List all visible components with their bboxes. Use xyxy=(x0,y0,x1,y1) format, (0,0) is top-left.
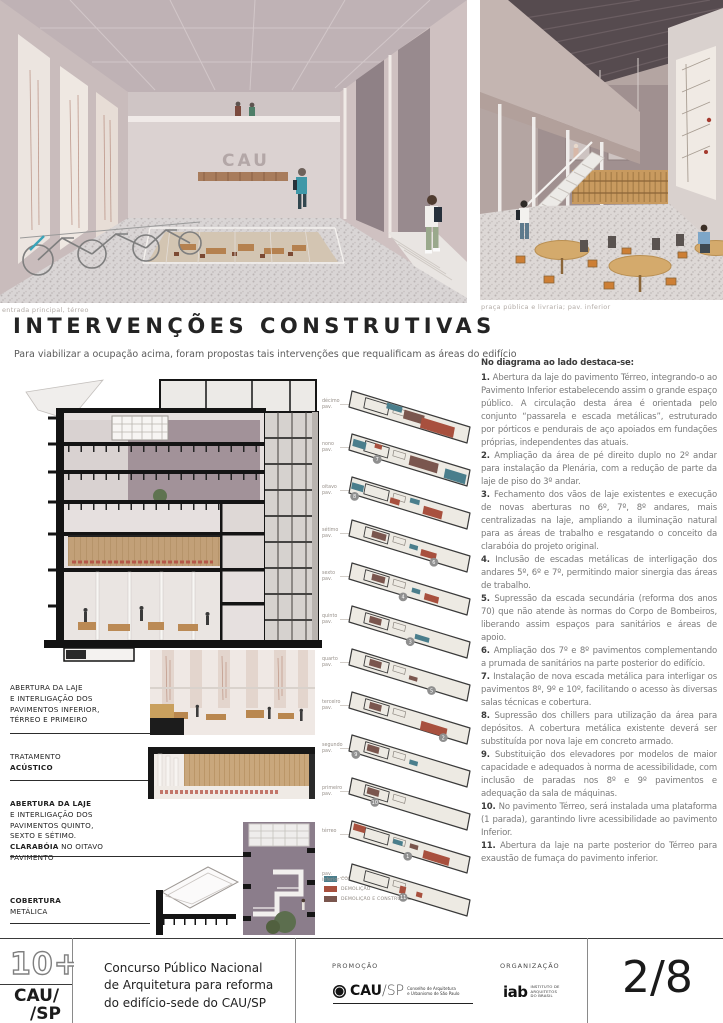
floor-label: oitavopav. xyxy=(322,485,344,497)
footer-cell-divider xyxy=(587,938,588,1023)
floor-label: quintopav. xyxy=(322,614,344,626)
intervention-item: 8. Supressão dos chillers para utilizaçã… xyxy=(481,710,717,749)
caption-plaza: praça pública e livraria; pav. inferior xyxy=(481,303,611,311)
intervention-item: 1. Abertura da laje do pavimento Térreo,… xyxy=(481,372,717,450)
footer-divider xyxy=(0,938,723,939)
svg-text:10: 10 xyxy=(372,800,378,806)
footer-cell-divider xyxy=(295,938,296,1023)
artwork-panels-right xyxy=(676,46,716,200)
intervention-item: 6. Ampliação dos 7º e 8º pavimentos comp… xyxy=(481,645,717,671)
floor-label: nonopav. xyxy=(322,442,344,454)
floor-label: pav.inferior xyxy=(322,872,344,884)
detail-skylight-stairs xyxy=(243,822,315,935)
plenary-wood-wall xyxy=(68,536,220,566)
rooftop-annex xyxy=(160,380,316,412)
floor-label: terceiropav. xyxy=(322,700,344,712)
causp-logo-subtext: Conselho de Arquitetura e Urbanismo de S… xyxy=(407,986,459,996)
floor-label: sétimopav. xyxy=(322,528,344,540)
caption-entrance: entrada principal, térreo xyxy=(2,306,89,314)
intervention-item: 11. Abertura da laje na parte posterior … xyxy=(481,840,717,866)
logo-divider xyxy=(0,984,72,985)
counter xyxy=(150,718,184,735)
building-section-drawing xyxy=(8,376,328,662)
detail-metal-roof xyxy=(150,862,242,935)
intervention-item: 5. Supressão da escada secundária (refor… xyxy=(481,593,717,645)
annotation-leader-line xyxy=(10,733,152,734)
render-entrance-hall: CAU xyxy=(0,0,467,303)
interventions-heading: No diagrama ao lado destaca-se: xyxy=(481,357,717,370)
page-subtitle: Para viabilizar a ocupação acima, foram … xyxy=(14,349,517,360)
detail-acoustic-room xyxy=(148,747,315,799)
svg-text:8: 8 xyxy=(353,494,356,500)
annotation-leader-line xyxy=(10,780,150,781)
reception-desk xyxy=(198,172,288,181)
svg-text:7: 7 xyxy=(376,457,379,463)
svg-text:9: 9 xyxy=(354,752,357,758)
axon-diagram: CONSTRUÇÃODEMOLIÇÃODEMOLIÇÃO E CONSTRUÇÃ… xyxy=(322,386,482,931)
svg-text:11: 11 xyxy=(400,895,406,901)
presentation-board: CAU xyxy=(0,0,723,1023)
render-public-plaza xyxy=(480,0,723,300)
causp-emblem-icon xyxy=(333,985,346,998)
team-logo-causp: CAU/ /SP xyxy=(14,988,61,1023)
causp-logo: CAU /SP Conselho de Arquitetura e Urbani… xyxy=(333,983,460,999)
person xyxy=(302,899,306,910)
annotation-slab-opening-upper: ABERTURA DA LAJEE INTERLIGAÇÃO DOSPAVIME… xyxy=(10,799,150,864)
intervention-item: 10. No pavimento Térreo, será instalada … xyxy=(481,801,717,840)
annotation-acoustic: TRATAMENTOACÚSTICO xyxy=(10,752,150,774)
org-label: ORGANIZAÇÃO xyxy=(500,962,560,970)
skylight xyxy=(112,416,168,440)
svg-text:4: 4 xyxy=(401,595,404,601)
floor-label: primeiropav. xyxy=(322,786,344,798)
floor-label: segundopav. xyxy=(322,743,344,755)
intervention-item: 2. Ampliação da área de pé direito duplo… xyxy=(481,450,717,489)
coffered-skylight xyxy=(249,824,309,846)
rear-tower xyxy=(264,412,318,644)
competition-title: Concurso Público Nacional de Arquitetura… xyxy=(104,960,273,1012)
intervention-item: 9. Substituição dos elevadores por model… xyxy=(481,749,717,801)
iab-logo-subtext: INSTITUTO DE ARQUITETOS DO BRASIL xyxy=(531,985,560,999)
team-logo-10plus: 10+ xyxy=(8,944,74,982)
iab-logo: iab INSTITUTO DE ARQUITETOS DO BRASIL xyxy=(503,983,560,1001)
ground-hall xyxy=(64,568,220,640)
annotation-metal-roof: COBERTURAMETÁLICA xyxy=(10,896,150,918)
floor-label: sextopav. xyxy=(322,571,344,583)
annotation-slab-opening-lower: ABERTURA DA LAJEE INTERLIGAÇÃO DOSPAVIME… xyxy=(10,683,150,726)
detail-lower-levels xyxy=(150,650,315,735)
intervention-item: 7. Instalação de nova escada metálica pa… xyxy=(481,671,717,710)
intervention-item: 4. Inclusão de escadas metálicas de inte… xyxy=(481,554,717,593)
intervention-item: 3. Fechamento dos vãos de laje existente… xyxy=(481,489,717,554)
page-title: INTERVENÇÕES CONSTRUTIVAS xyxy=(13,314,496,338)
cau-sign: CAU xyxy=(222,151,270,171)
floor-row: pav.inferior11 xyxy=(322,859,480,925)
causp-logo-underline xyxy=(333,1003,473,1004)
page-number: 2/8 xyxy=(622,952,693,1003)
floor-label: décimopav. xyxy=(322,399,344,411)
interventions-column: No diagrama ao lado destaca-se: 1. Abert… xyxy=(481,357,717,937)
annotation-leader-line xyxy=(10,856,243,857)
floor-plate: 11 xyxy=(346,859,478,925)
logo-10plus-text: 10+ xyxy=(10,947,74,982)
promo-label: PROMOÇÃO xyxy=(332,962,378,970)
interventions-list: 1. Abertura da laje do pavimento Térreo,… xyxy=(481,372,717,866)
mezzanine-slab xyxy=(128,116,340,122)
ground-line xyxy=(44,640,322,648)
floor-label: quartopav. xyxy=(322,657,344,669)
wood-slat-wall xyxy=(184,754,309,786)
